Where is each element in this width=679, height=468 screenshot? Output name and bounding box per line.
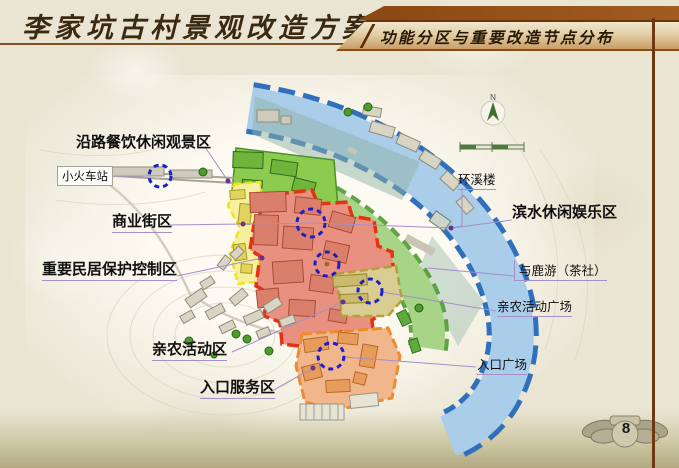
north-arrow: N xyxy=(481,93,505,125)
north-label: N xyxy=(490,93,496,102)
label-deer-teahouse: 与鹿游（茶社） xyxy=(514,260,607,281)
label-entrance-service-zone: 入口服务区 xyxy=(200,376,275,399)
label-residence-protection-zone: 重要民居保护控制区 xyxy=(42,258,177,281)
label-scenic-dining-zone: 沿路餐饮休闲观景区 xyxy=(76,131,211,152)
label-farm-activity-zone: 亲农活动区 xyxy=(152,338,227,361)
banner-top-band xyxy=(358,6,679,20)
zone-farm-activity-plaza xyxy=(333,266,402,316)
node-center-dot xyxy=(325,262,330,267)
title-underline xyxy=(0,43,378,45)
label-entrance-plaza: 入口广场 xyxy=(477,354,527,375)
banner-slash-mark xyxy=(360,24,376,48)
section-banner: 功能分区与重要改造节点分布 xyxy=(336,20,679,51)
label-waterfront-leisure-zone: 滨水休闲娱乐区 xyxy=(512,201,617,222)
label-train-station: 小火车站 xyxy=(57,166,113,186)
label-farm-activity-plaza: 亲农活动广场 xyxy=(497,296,572,317)
label-huanxi-tower: 环溪楼 xyxy=(458,169,496,190)
section-banner-title: 功能分区与重要改造节点分布 xyxy=(380,26,614,48)
page-number: 8 xyxy=(616,420,636,437)
master-plan-map: N xyxy=(0,0,679,468)
label-commercial-street-zone: 商业街区 xyxy=(112,210,172,233)
right-vertical-rule xyxy=(652,18,655,468)
slide-title: 李家坑古村景观改造方案 xyxy=(22,6,374,45)
scale-bar xyxy=(460,142,524,152)
railway xyxy=(98,167,234,183)
